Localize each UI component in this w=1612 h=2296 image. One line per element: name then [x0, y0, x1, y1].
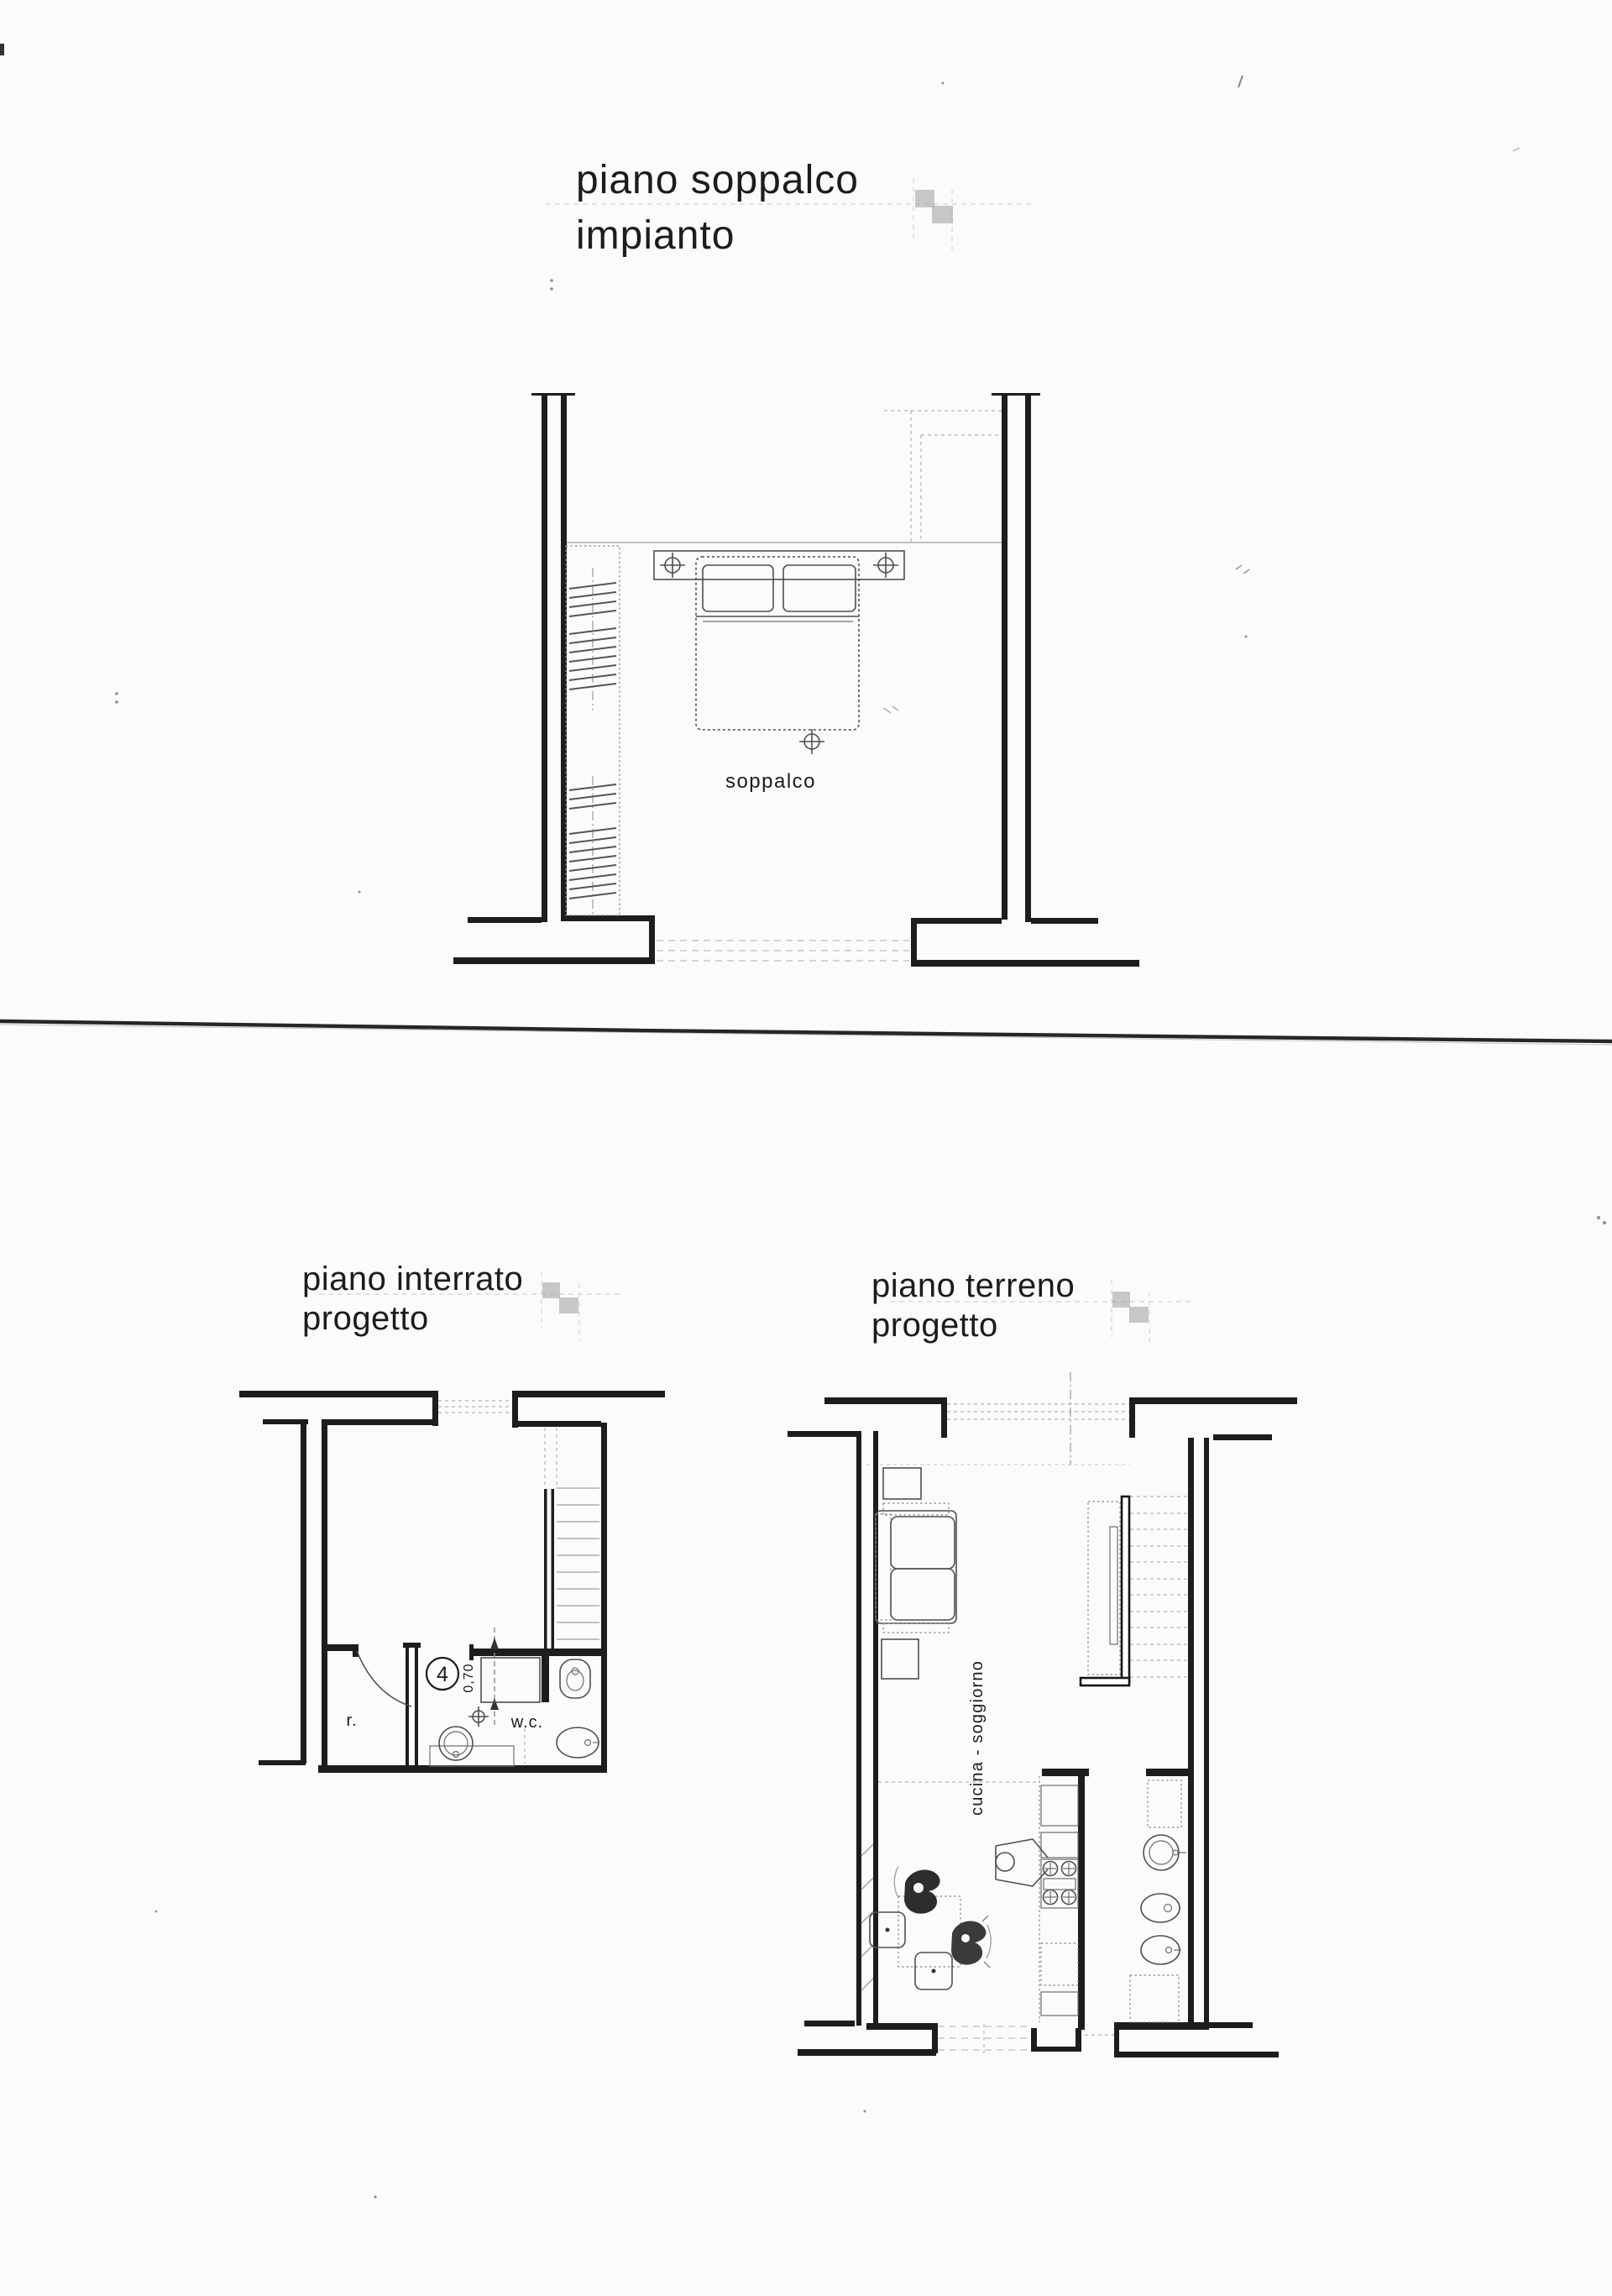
- double-bed: [654, 551, 904, 754]
- pillow: [783, 565, 856, 611]
- staircase: [1130, 1497, 1188, 1677]
- walls: [788, 1397, 1297, 2057]
- room-label-cucina-soggiorno: cucina - soggiorno: [968, 1660, 987, 1816]
- stamp-mark-top: [546, 178, 1031, 252]
- stair-treads: [557, 1488, 599, 1639]
- side-table: [882, 1639, 919, 1679]
- door-swing: [357, 1651, 411, 1706]
- scan-specks: [0, 44, 1606, 2199]
- floor-plan-drawing: soppalco: [0, 0, 1612, 2296]
- staircase: [542, 1428, 599, 1651]
- fixing-symbol: [799, 729, 824, 754]
- shower-cabinet: [1148, 1780, 1181, 1827]
- plan-terreno: cucina - soggiorno: [788, 1372, 1297, 2057]
- room-label-soppalco: soppalco: [725, 770, 816, 793]
- stair-treads: [1130, 1497, 1188, 1677]
- shower-tray: [1130, 1975, 1179, 2022]
- sofa: [876, 1503, 956, 1633]
- dimension-arrow: [490, 1628, 499, 1727]
- shower-box: [481, 1658, 540, 1702]
- threshold-dashes: [657, 941, 909, 961]
- stamp-mark-interrato: [319, 1271, 621, 1340]
- plan-interrato: 4 0,70 r. w.c.: [239, 1391, 665, 1773]
- headboard: [654, 551, 904, 579]
- bathroom: [1130, 1780, 1186, 2022]
- bidet: [1141, 1936, 1181, 1964]
- wardrobe: [566, 546, 620, 915]
- walls: [239, 1391, 665, 1773]
- pillow: [703, 565, 773, 611]
- chair-at-counter: [996, 1839, 1048, 1886]
- room-label-r: r.: [346, 1712, 357, 1730]
- fixing-symbol: [873, 553, 898, 578]
- door-number-label: 4: [437, 1663, 448, 1686]
- washbasin: [1144, 1835, 1186, 1870]
- washbasin: [430, 1727, 514, 1766]
- plan-soppalco: soppalco: [453, 393, 1139, 967]
- walls: [453, 393, 1139, 967]
- dark-chair: [951, 1916, 991, 1968]
- kitchen-counter: [1039, 1776, 1078, 2022]
- door-width-label: 0,70: [462, 1663, 476, 1692]
- door-number-badge: 4: [427, 1658, 458, 1690]
- dark-chair: [894, 1866, 939, 1914]
- side-table: [883, 1468, 921, 1499]
- toilet: [1141, 1894, 1180, 1922]
- toilet: [560, 1659, 590, 1698]
- fixing-symbol: [660, 553, 685, 578]
- scanned-floor-plan-page: piano soppalco impianto piano interrato …: [0, 0, 1612, 2296]
- room-label-wc: w.c.: [510, 1713, 543, 1732]
- stool: [915, 1953, 952, 1989]
- stove-burners: [1044, 1862, 1076, 1905]
- stair-stringer-wall: [542, 1489, 555, 1651]
- door-opening-dashes: [866, 1372, 1129, 1465]
- tv-cabinet: [1081, 1497, 1129, 1685]
- wall-hatch-ticks: [861, 1844, 873, 1990]
- page-divider-line: [0, 1021, 1612, 1045]
- scan-squiggle: [883, 706, 898, 713]
- bidet: [557, 1727, 599, 1758]
- door-opening-dashes: [438, 1401, 512, 1413]
- fixing-symbol: [468, 1706, 489, 1727]
- entrance-dashes: [938, 2024, 1114, 2053]
- stamp-mark-terreno: [890, 1280, 1191, 1347]
- void-opening-lines: [884, 411, 1002, 543]
- mattress: [696, 557, 859, 730]
